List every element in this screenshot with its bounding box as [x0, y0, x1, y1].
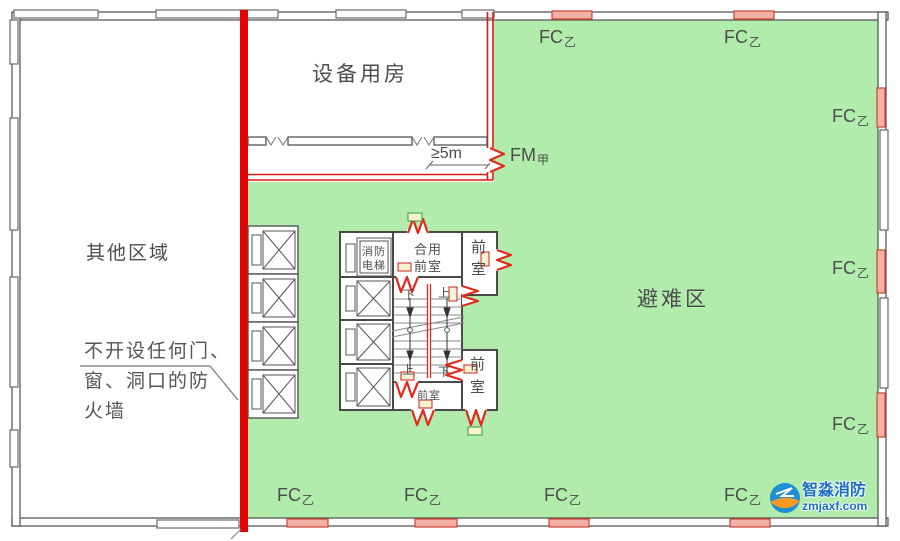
equipment-room-label: 设备用房 — [312, 64, 408, 85]
watermark-brand: 智淼消防 — [802, 483, 866, 499]
lobby-se-label-2: 室 — [470, 380, 485, 395]
stair-down-label-bottom: 下 — [438, 366, 450, 378]
floor-plan: 设备用房 其他区域 避难区 ≥5m FM甲 FC乙 FC乙 FC乙 FC乙 FC… — [0, 0, 900, 541]
stair-up-label-bottom: 上 — [402, 364, 414, 376]
firewall-note-line-3: 火墙 — [84, 402, 126, 421]
fire-door-label: FM甲 — [510, 146, 549, 166]
floor-plan-drawing — [0, 0, 900, 541]
fire-window-label-bottom-1: FC乙 — [277, 486, 314, 506]
lobby-bottom-label: 前室 — [410, 391, 448, 402]
refuge-area-label: 避难区 — [637, 289, 709, 310]
lobby-ne-label-2: 室 — [471, 262, 486, 277]
other-area-label: 其他区域 — [86, 244, 170, 263]
dimension-line — [426, 161, 492, 169]
fire-window-label-top-2: FC乙 — [724, 28, 761, 48]
firewall-note-line-2: 窗、洞口的防 — [84, 372, 210, 391]
stair-down-label-top: 下 — [403, 289, 415, 301]
fire-window-label-bottom-4: FC乙 — [724, 486, 761, 506]
watermark-site: zmjaxf.com — [802, 500, 867, 512]
stair-up-label-top: 上 — [438, 287, 450, 299]
shared-lobby-label-1: 合用 — [406, 243, 450, 256]
firewall — [240, 10, 248, 532]
distance-label: ≥5m — [431, 146, 462, 162]
watermark-logo — [770, 483, 800, 513]
fire-window-label-top-1: FC乙 — [539, 28, 576, 48]
fire-window-label-right-3: FC乙 — [832, 415, 869, 435]
lobby-ne-label-1: 前 — [471, 240, 486, 255]
fire-window-label-right-2: FC乙 — [832, 259, 869, 279]
core-elevator-cells — [346, 281, 390, 406]
shared-lobby-label-2: 前室 — [406, 260, 450, 273]
fire-window-label-bottom-2: FC乙 — [404, 486, 441, 506]
fire-window-label-right-1: FC乙 — [832, 107, 869, 127]
fire-window-label-bottom-3: FC乙 — [544, 486, 581, 506]
fire-elevator-label-2: 电梯 — [359, 261, 389, 272]
firewall-note-line-1: 不开设任何门、 — [84, 342, 231, 361]
fire-elevator-label-1: 消防 — [359, 247, 389, 258]
lobby-se-label-1: 前 — [470, 357, 485, 372]
